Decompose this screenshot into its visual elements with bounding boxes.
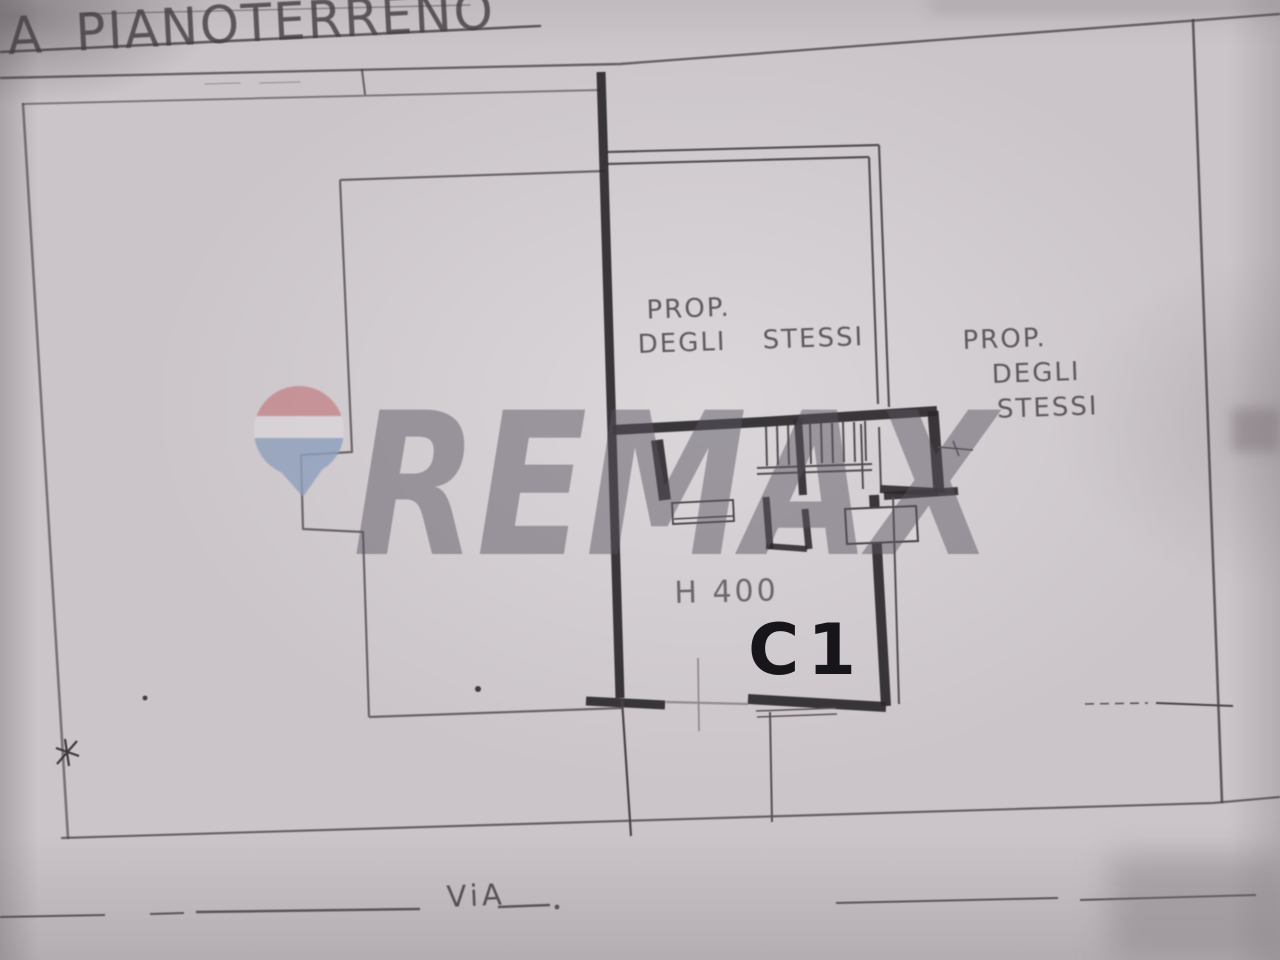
adjacent-property-outline bbox=[301, 171, 622, 717]
street-line bbox=[0, 895, 1256, 917]
street-label: ViA bbox=[446, 879, 506, 913]
property-note-right-line1: PROP. bbox=[962, 319, 1097, 359]
ceiling-height-note: H 400 bbox=[674, 575, 779, 610]
property-note-right-line2: DEGLI bbox=[991, 354, 1098, 393]
property-note-right-line3: STESSI bbox=[996, 389, 1099, 428]
upper-room-outline bbox=[607, 145, 889, 407]
unit-label: C1 bbox=[748, 615, 864, 685]
survey-marks bbox=[56, 686, 481, 766]
property-note-right: PROP. DEGLI STESSI bbox=[962, 319, 1099, 429]
property-note-left: PROP. DEGLI STESSI bbox=[636, 286, 865, 362]
scanned-cadastral-floorplan: A PIANOTERRENO PROP. DEGLI STESSI PROP. … bbox=[0, 0, 1280, 960]
floor-plan-drawing bbox=[0, 0, 1280, 960]
staircase bbox=[757, 421, 881, 489]
